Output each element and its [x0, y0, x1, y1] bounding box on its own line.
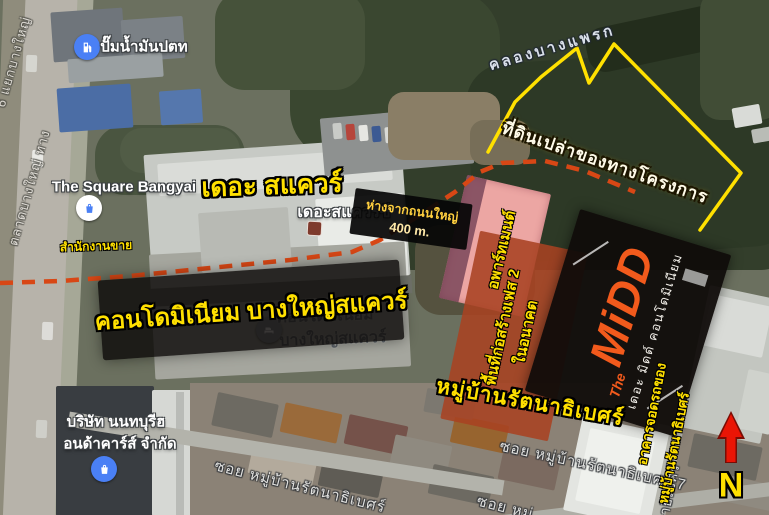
sign-gray-rect — [682, 268, 708, 286]
map-shape — [332, 123, 342, 140]
map-shape — [159, 89, 203, 126]
map-shape — [215, 0, 365, 90]
shopping-bag-icon[interactable] — [76, 195, 102, 221]
map-shape — [36, 420, 48, 438]
shop-square-marker-icon[interactable] — [307, 221, 323, 237]
north-label: N — [719, 466, 744, 505]
midd-logo: TheMiDD เดอะ มิดด์ คอนโดมิเนียม — [568, 234, 688, 412]
map-shape — [345, 124, 355, 141]
condo-banner-text: คอนโดมิเนียม บางใหญ่สแควร์ — [93, 280, 408, 341]
honda-label-line2: อนด้าคาร์ส์ จำกัด — [63, 435, 176, 452]
map-shape — [176, 392, 184, 515]
map-shape — [358, 125, 368, 142]
map-shape — [57, 83, 134, 132]
shopping-bag-icon[interactable] — [91, 456, 117, 482]
fuel-pump-icon[interactable] — [74, 34, 100, 60]
square-title: เดอะ สแควร์ — [201, 169, 343, 204]
honda-label-line1: บริษัท นนทบุรีฮ — [67, 413, 166, 430]
sales-office-label: สำนักงานขาย — [60, 239, 133, 255]
the-square-en-label: The Square Bangyai — [52, 178, 196, 195]
sign-slash-decoration — [573, 241, 609, 265]
map-shape — [700, 0, 769, 120]
map-shape — [751, 126, 769, 143]
map-shape — [371, 126, 381, 143]
map-shape — [42, 322, 54, 340]
satellite-map[interactable]: อพาร์ทเมนต์ พื้นที่ก่อสร้างเฟส 2 ในอนาคต… — [0, 0, 769, 515]
map-shape — [198, 207, 292, 273]
map-shape — [26, 55, 38, 72]
gas-station-label: ปั๊มน้ำมันปตท — [100, 38, 187, 55]
